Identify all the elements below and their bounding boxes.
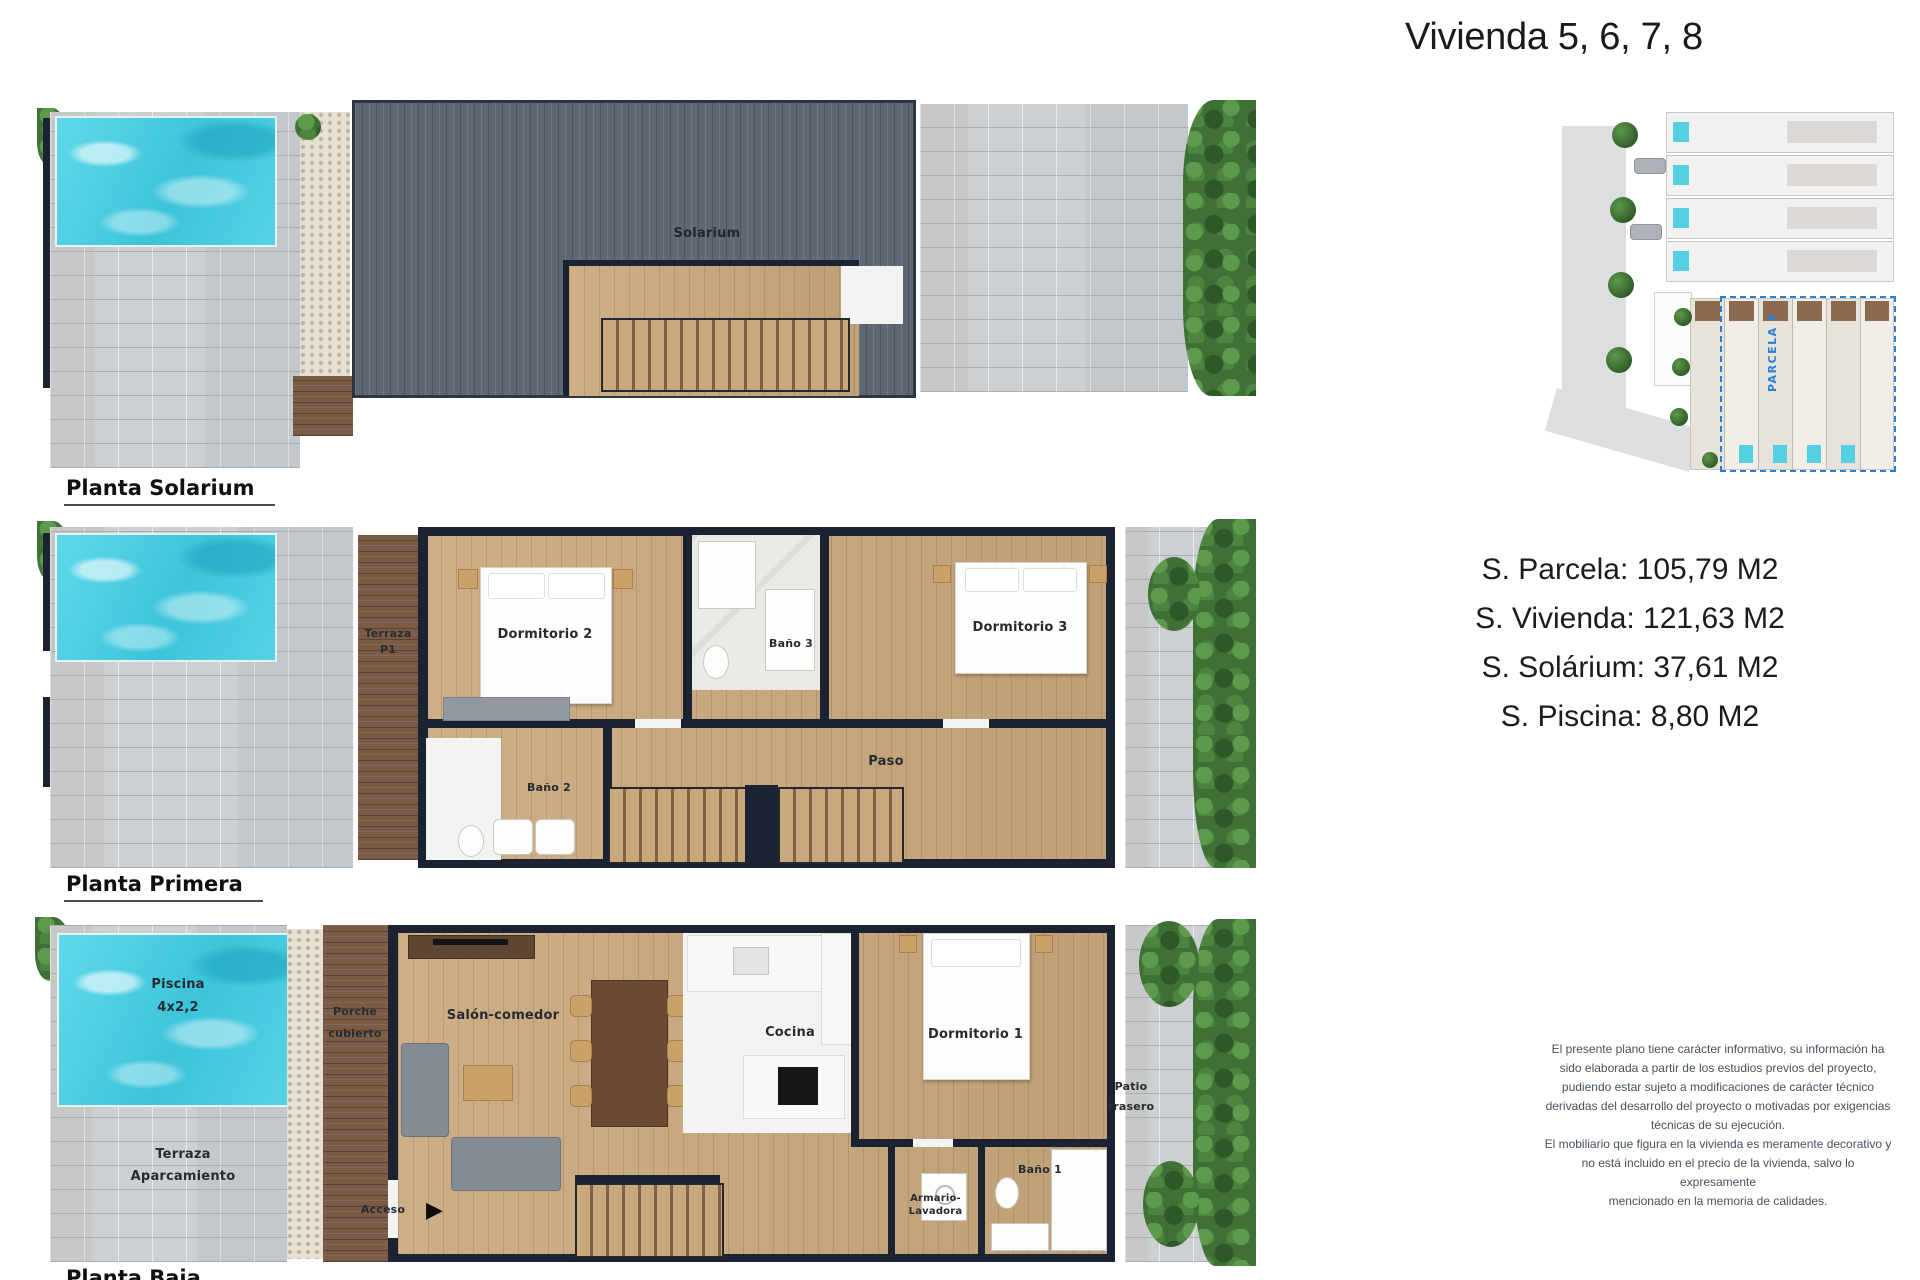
plan-solarium-drawing: Solarium — [43, 108, 1256, 470]
parcela-f-label: PARCELA F — [1766, 297, 1780, 407]
area-solarium: S. Solárium: 37,61 M2 — [1455, 643, 1805, 692]
door-opening — [913, 1139, 953, 1147]
acceso-arrow-icon: ▶ — [426, 1200, 443, 1222]
stairs — [601, 318, 850, 392]
pool — [1673, 251, 1689, 271]
room-label-bano2: Baño 2 — [489, 781, 609, 794]
disclaimer-line: El mobiliario que figura en la vivienda … — [1542, 1135, 1894, 1154]
pool — [1673, 122, 1689, 142]
door-opening — [635, 719, 681, 728]
chair — [570, 1040, 592, 1062]
stairs — [608, 787, 749, 864]
disclaimer-line: no está incluido en el precio de la vivi… — [1542, 1154, 1894, 1192]
nightstand — [613, 569, 633, 589]
toilet — [458, 825, 484, 857]
kitchen-sink — [733, 947, 769, 975]
toilet — [703, 645, 729, 679]
sofa — [451, 1137, 561, 1191]
room-label-lavadora: Lavadora — [888, 1206, 983, 1218]
room-label-piscina: Piscina — [128, 977, 228, 993]
parcela-f-outline — [1720, 296, 1896, 472]
unit-interior — [1787, 207, 1877, 229]
bush-icon — [1672, 358, 1690, 376]
wall — [851, 925, 859, 1147]
house-unit — [1666, 155, 1894, 196]
nightstand — [1035, 935, 1053, 953]
hedge — [1183, 100, 1256, 396]
area-parcela: S. Parcela: 105,79 M2 — [1455, 545, 1805, 594]
gravel-strip — [300, 112, 350, 412]
room-label-terraza-p1-line2: P1 — [358, 643, 418, 656]
disclaimer: El presente plano tiene carácter informa… — [1542, 1040, 1894, 1211]
tree-icon — [1143, 1161, 1199, 1247]
car-icon — [1630, 224, 1662, 240]
pillow — [1023, 568, 1077, 592]
nightstand — [458, 569, 478, 589]
roof-access — [841, 266, 903, 324]
car-icon — [1634, 158, 1666, 174]
wall — [1107, 925, 1115, 1262]
nightstand — [899, 935, 917, 953]
room-label-dormitorio1: Dormitorio 1 — [923, 1027, 1028, 1043]
wall — [1106, 527, 1115, 868]
chair — [570, 1085, 592, 1107]
plan-title-primera: Planta Primera — [64, 872, 263, 902]
unit-interior — [1787, 121, 1877, 143]
gravel-strip — [287, 929, 323, 1259]
plan-baja-drawing: Piscina 4x2,2 Terraza Aparcamiento Porch… — [43, 925, 1256, 1262]
surface-areas: S. Parcela: 105,79 M2 S. Vivienda: 121,6… — [1455, 545, 1805, 741]
room-label-aparcamiento: Aparcamiento — [103, 1169, 263, 1185]
plan-title-solarium: Planta Solarium — [64, 476, 275, 506]
room-label-dormitorio3: Dormitorio 3 — [955, 620, 1085, 636]
room-label-piscina-size: 4x2,2 — [128, 1000, 228, 1016]
room-label-bano1: Baño 1 — [990, 1163, 1090, 1176]
sink — [535, 819, 575, 855]
page-title: Vivienda 5, 6, 7, 8 — [1405, 16, 1920, 59]
unit-interior — [1787, 164, 1877, 186]
pillow — [965, 568, 1019, 592]
room-label-porche: Porche — [315, 1005, 395, 1018]
hedge — [1193, 519, 1256, 868]
boundary-wall — [43, 697, 50, 787]
terraza-p1-deck — [358, 535, 418, 860]
sofa — [401, 1043, 449, 1137]
room-label-terraza: Terraza — [103, 1147, 263, 1163]
boundary-wall — [43, 533, 50, 651]
coffee-table — [463, 1065, 513, 1101]
pool — [57, 933, 291, 1107]
pillow — [548, 573, 605, 599]
room-label-armario: Armario- — [888, 1193, 983, 1205]
pool — [55, 116, 277, 247]
wall — [388, 925, 1115, 933]
disclaimer-line: pudiendo estar sujeto a modificaciones d… — [1542, 1078, 1894, 1097]
pool — [1673, 208, 1689, 228]
unit-interior — [1787, 250, 1877, 272]
nightstand — [1089, 565, 1107, 583]
site-plan: PARCELA F — [1562, 112, 1892, 468]
pillow — [931, 939, 1021, 967]
stair-wall — [745, 785, 778, 862]
unit-roof — [1695, 301, 1720, 321]
pool — [55, 533, 277, 662]
stair-wall — [575, 1175, 720, 1183]
disclaimer-line: sido elaborada a partir de los estudios … — [1542, 1059, 1894, 1078]
boundary-wall — [43, 118, 50, 388]
dining-table — [591, 980, 668, 1127]
room-label-patio: Patio — [1091, 1080, 1171, 1093]
chair — [570, 995, 592, 1017]
house-unit — [1666, 241, 1894, 282]
room-label-cocina: Cocina — [745, 1025, 835, 1041]
sink-counter — [991, 1223, 1049, 1251]
wall — [683, 535, 692, 719]
toilet — [995, 1177, 1019, 1209]
room-label-dormitorio2: Dormitorio 2 — [480, 627, 610, 643]
bush-icon — [1674, 308, 1692, 326]
room-label-terraza-p1: Terraza — [358, 627, 418, 640]
tree-icon — [1148, 557, 1200, 631]
tree-icon — [1612, 122, 1638, 148]
area-piscina: S. Piscina: 8,80 M2 — [1455, 692, 1805, 741]
tree-icon — [1608, 272, 1634, 298]
plan-title-baja: Planta Baja — [64, 1266, 221, 1280]
sink-counter — [765, 589, 815, 671]
sink — [493, 819, 533, 855]
cooktop — [778, 1067, 818, 1105]
tree-icon — [1139, 921, 1199, 1007]
disclaimer-line: derivadas del desarrollo del proyecto o … — [1542, 1097, 1894, 1116]
bush-icon — [1702, 452, 1718, 468]
floorplan-sheet: Vivienda 5, 6, 7, 8 Solarium Planta Sola… — [0, 0, 1920, 1280]
shower — [698, 541, 756, 609]
tv — [433, 939, 508, 945]
pillow — [488, 573, 545, 599]
house-unit — [1666, 112, 1894, 153]
wall — [820, 535, 829, 719]
nightstand — [933, 565, 951, 583]
room-label-cubierto: cubierto — [315, 1027, 395, 1040]
hedge — [1193, 919, 1256, 1266]
room-label-trasero: trasero — [1091, 1100, 1171, 1113]
disclaimer-line: mencionado en la memoria de calidades. — [1542, 1192, 1894, 1211]
plan-primera-drawing: Terraza P1 Dormitorio 2 Baño 3 Dormitori… — [43, 527, 1256, 868]
disclaimer-line: técnicas de su ejecución. — [1542, 1116, 1894, 1135]
stairs — [778, 787, 904, 864]
room-label-acceso: Acceso — [343, 1203, 423, 1216]
tree-icon — [1606, 347, 1632, 373]
plant-icon — [295, 114, 321, 140]
room-label-solarium: Solarium — [627, 226, 787, 242]
wall — [388, 1254, 1115, 1262]
pool — [1673, 165, 1689, 185]
wood-deck-block — [293, 376, 353, 436]
disclaimer-line: El presente plano tiene carácter informa… — [1542, 1040, 1894, 1059]
room-label-bano3: Baño 3 — [731, 637, 851, 650]
room-label-salon: Salón-comedor — [433, 1008, 573, 1024]
stairs — [575, 1183, 724, 1258]
area-vivienda: S. Vivienda: 121,63 M2 — [1455, 594, 1805, 643]
bush-icon — [1670, 408, 1688, 426]
house-unit — [1666, 198, 1894, 239]
door-opening — [943, 719, 989, 728]
room-label-paso: Paso — [826, 754, 946, 770]
tree-icon — [1610, 197, 1636, 223]
pavement-right — [920, 104, 1188, 392]
wardrobe — [443, 697, 570, 721]
